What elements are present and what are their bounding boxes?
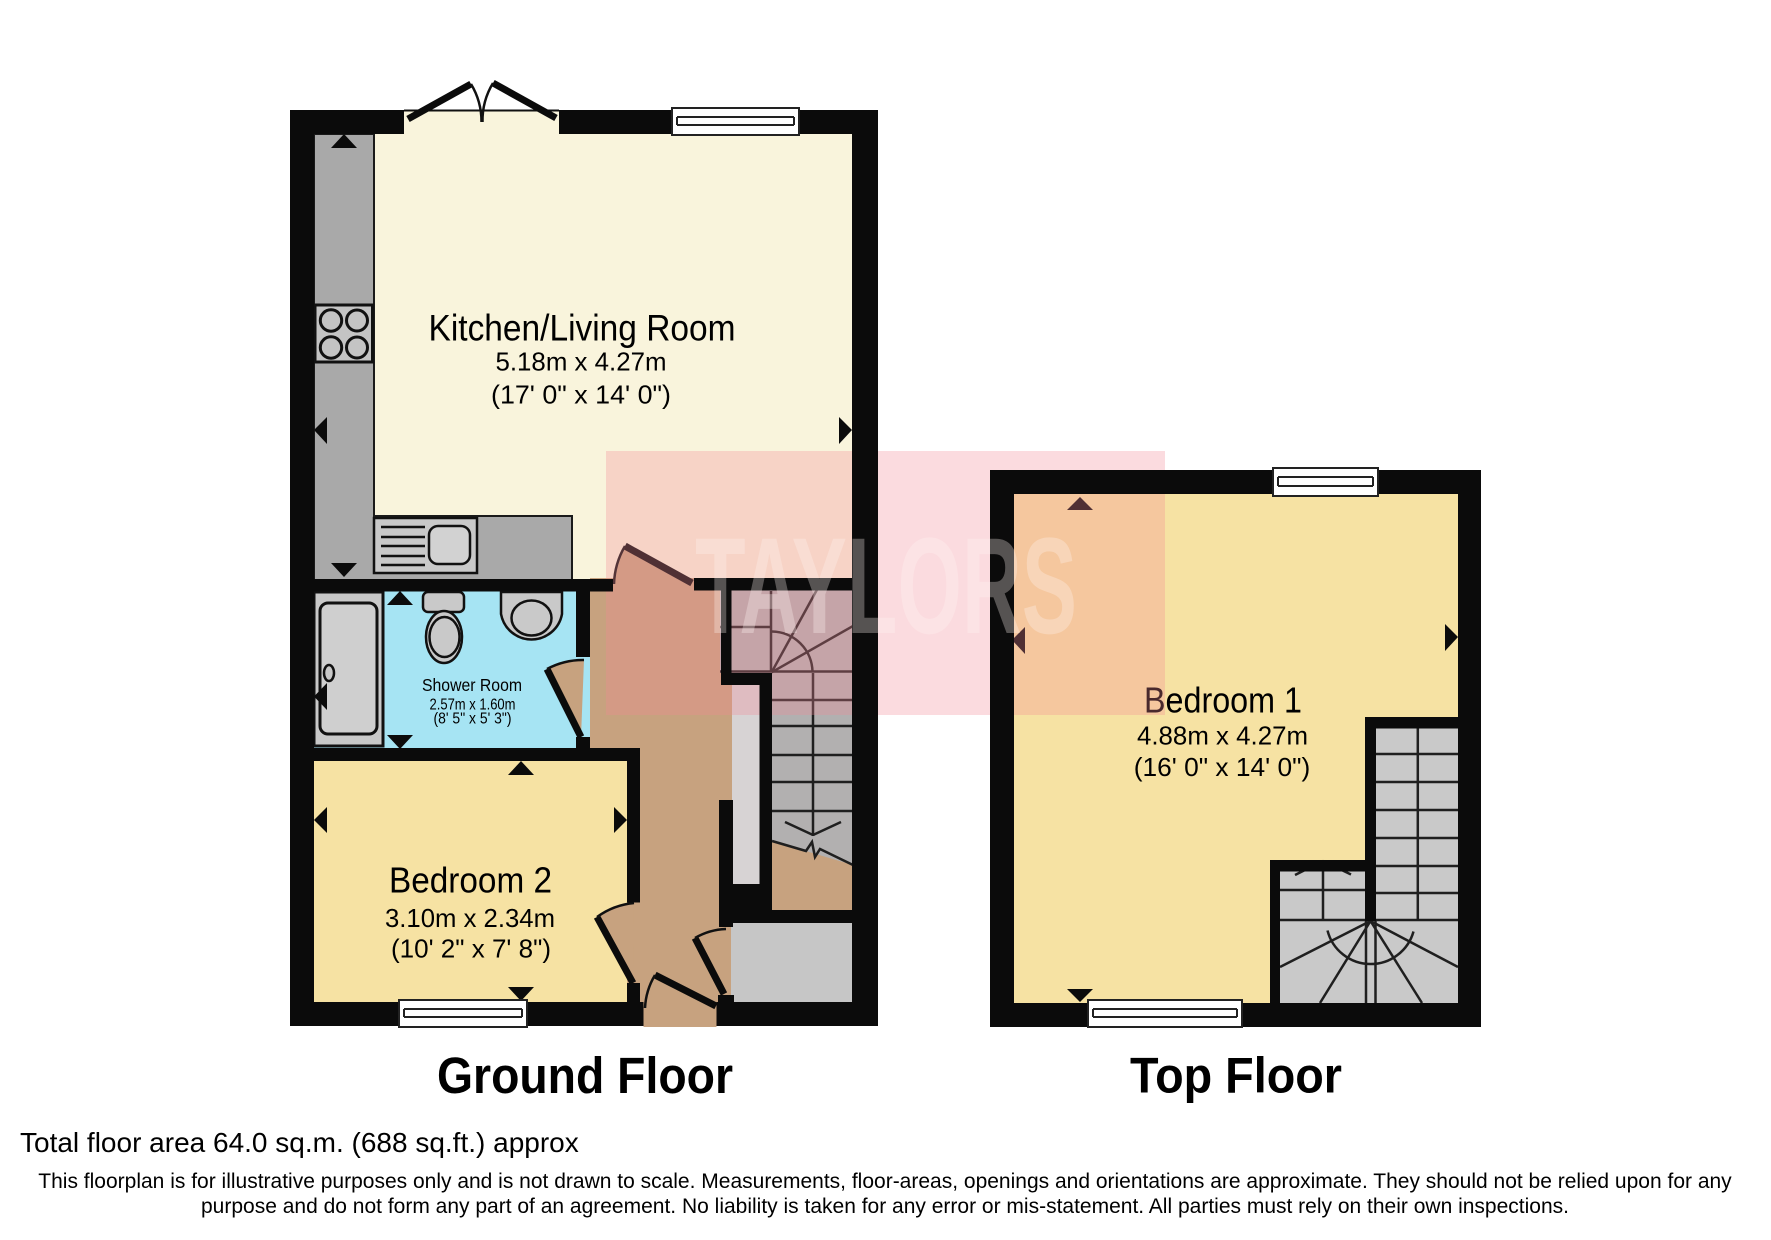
svg-text:Shower Room: Shower Room [422,675,522,695]
svg-text:Top Floor: Top Floor [1130,1048,1342,1104]
svg-text:purpose and do not form any pa: purpose and do not form any part of an a… [201,1195,1569,1218]
svg-text:5.18m x 4.27m: 5.18m x 4.27m [496,347,667,377]
svg-text:4.88m x 4.27m: 4.88m x 4.27m [1137,721,1308,751]
svg-text:Kitchen/Living Room: Kitchen/Living Room [429,308,736,349]
svg-text:Total floor area 64.0 sq.m. (6: Total floor area 64.0 sq.m. (688 sq.ft.)… [20,1127,579,1158]
svg-text:Bedroom 1: Bedroom 1 [1144,680,1302,721]
svg-text:(17' 0" x 14' 0"): (17' 0" x 14' 0") [491,380,671,410]
svg-text:TAYLORS: TAYLORS [695,510,1077,663]
svg-text:(10' 2" x 7' 8"): (10' 2" x 7' 8") [391,934,551,964]
svg-text:(16' 0" x 14' 0"): (16' 0" x 14' 0") [1134,752,1311,782]
svg-text:Ground Floor: Ground Floor [437,1047,733,1104]
svg-text:This floorplan is for illustra: This floorplan is for illustrative purpo… [38,1170,1732,1193]
svg-text:Bedroom 2: Bedroom 2 [389,860,552,901]
svg-text:(8' 5" x 5' 3"): (8' 5" x 5' 3") [434,711,512,728]
svg-text:3.10m x 2.34m: 3.10m x 2.34m [385,903,555,933]
